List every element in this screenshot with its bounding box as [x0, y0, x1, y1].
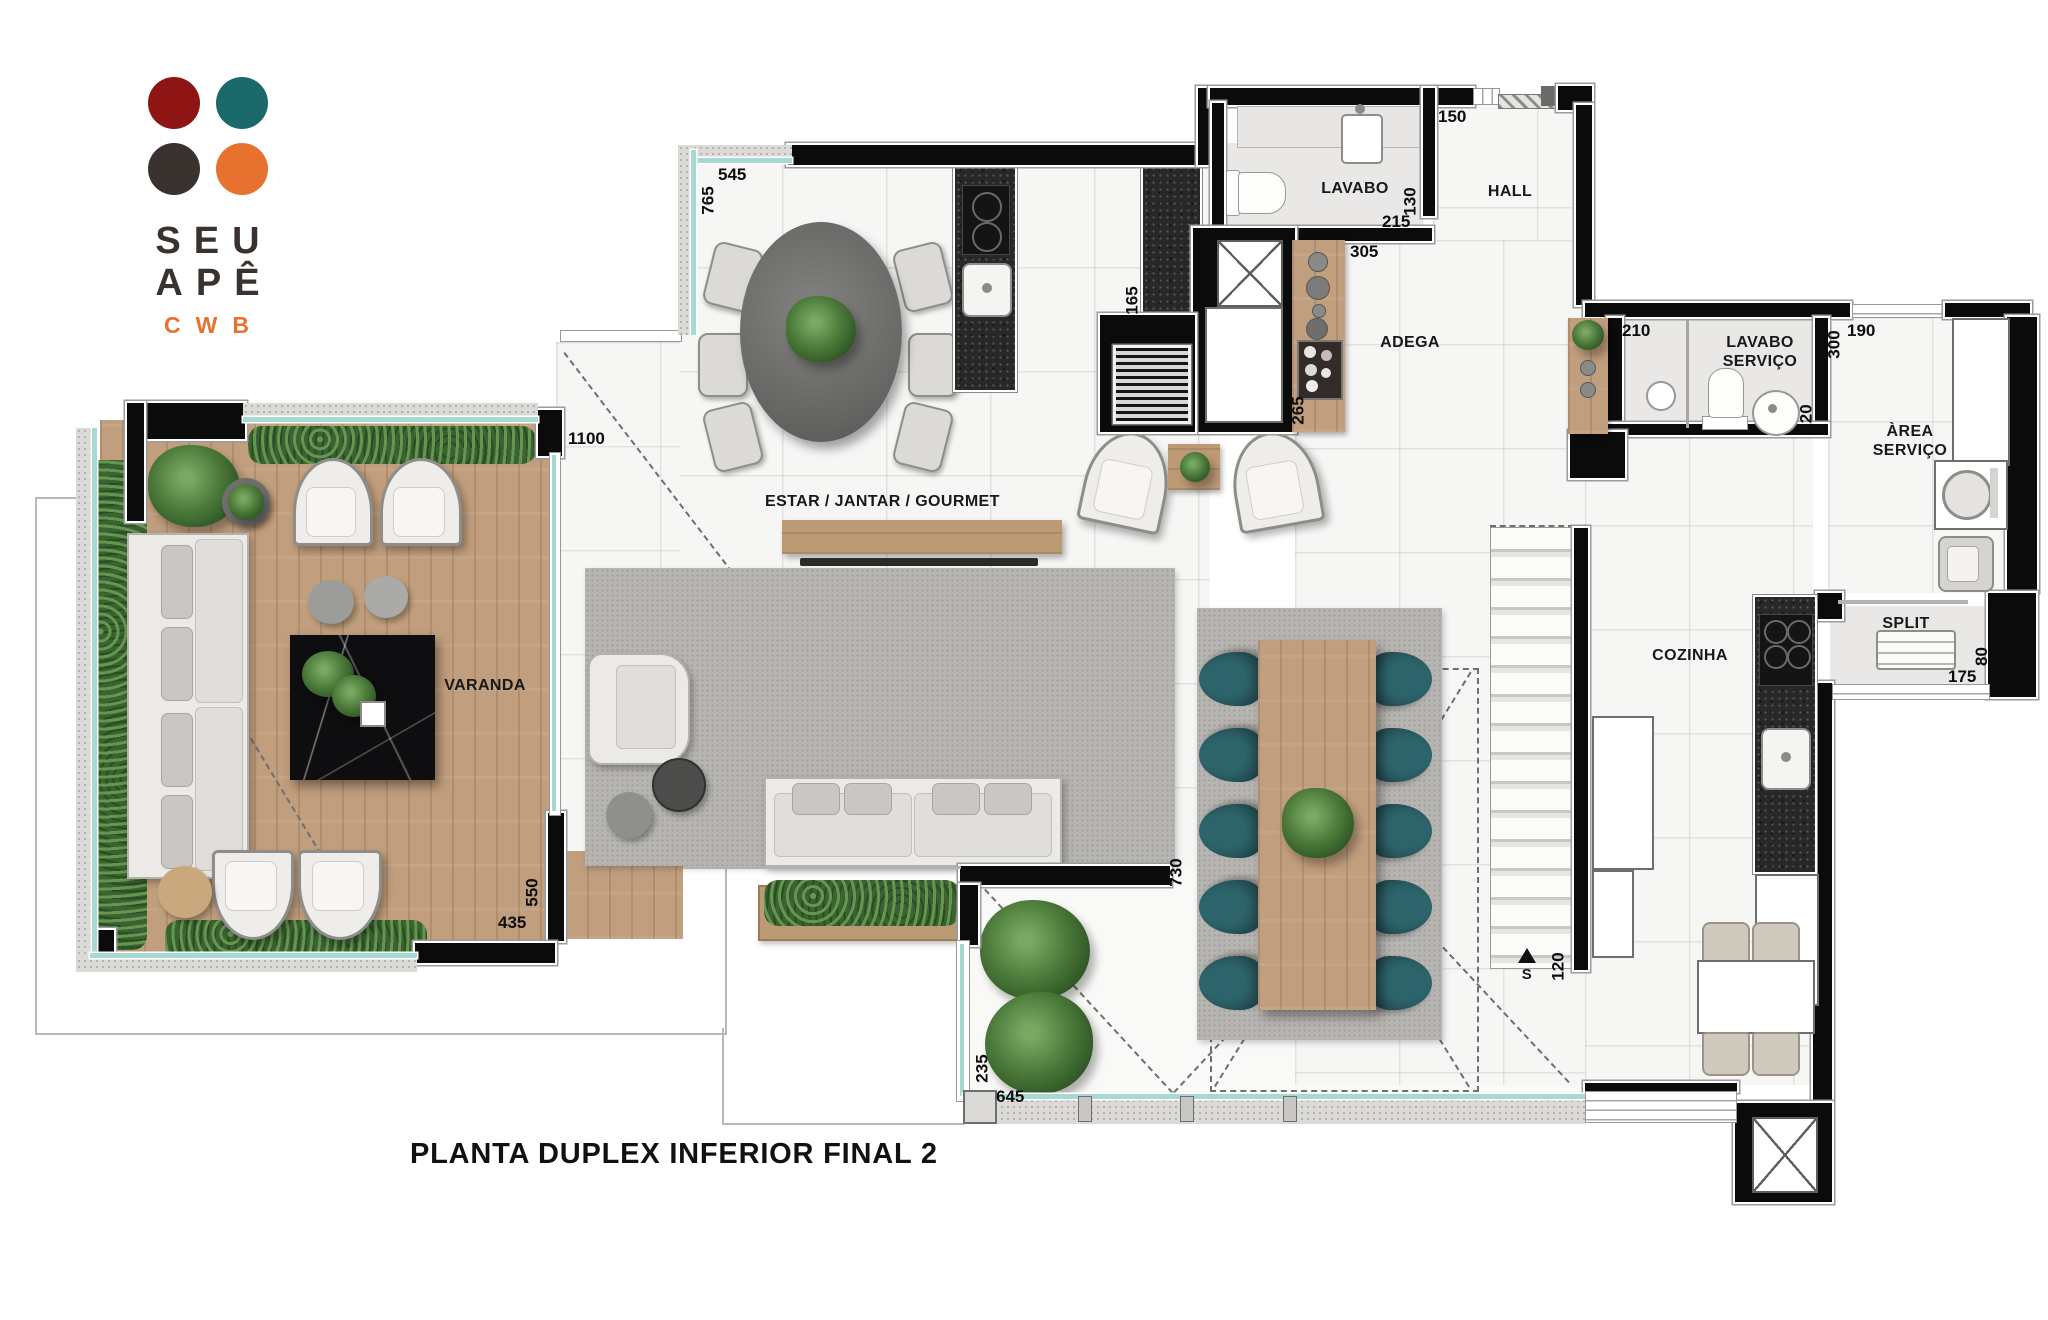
plan-title: PLANTA DUPLEX INFERIOR FINAL 2 — [410, 1138, 938, 1171]
fridge-cabinet — [1592, 716, 1654, 870]
facade-edge — [678, 145, 691, 335]
tall-cabinet — [1592, 870, 1634, 958]
window-glass — [90, 953, 417, 958]
dim-305: 305 — [1350, 243, 1378, 260]
sofa-pillow — [161, 713, 193, 787]
logo-circle-red — [148, 77, 200, 129]
dim-190: 190 — [1847, 322, 1875, 339]
logo-circle-orange — [216, 143, 268, 195]
dining-chair — [891, 400, 955, 474]
cabinet-knob — [1306, 276, 1330, 300]
burner — [1764, 645, 1788, 669]
dim-120-stair: 120 — [1550, 952, 1567, 980]
dim-550: 550 — [524, 878, 541, 906]
kitchen-cooktop — [1759, 614, 1813, 686]
facade-edge — [76, 958, 417, 972]
sofa-pillow — [792, 783, 840, 815]
island-cooktop — [962, 185, 1010, 255]
logo-circle-dark — [148, 143, 200, 195]
door-glass — [552, 455, 556, 811]
logo-circle-teal — [216, 77, 268, 129]
wall — [538, 410, 562, 456]
wine-bottle — [1306, 380, 1318, 392]
round-side-table — [652, 758, 706, 812]
burner — [1787, 645, 1811, 669]
wall — [1585, 1083, 1737, 1091]
dim-215: 215 — [1382, 213, 1410, 230]
island-sink — [962, 263, 1012, 317]
wall — [548, 813, 564, 941]
faucet — [1768, 404, 1777, 413]
terrace-chair-column-right — [1372, 640, 1428, 1010]
chair-cushion — [306, 487, 356, 537]
dim-300: 300 — [1826, 330, 1843, 358]
estar-armchair — [588, 653, 690, 765]
stair-marker: S — [1516, 966, 1538, 984]
duct-shaft — [1752, 1117, 1818, 1193]
low-wall — [560, 330, 682, 342]
hall-label: HALL — [1470, 182, 1550, 201]
stair-stringer-wall — [1574, 528, 1588, 970]
dim-730: 730 — [1168, 858, 1185, 886]
washer-panel — [1990, 468, 1998, 518]
dim-645: 645 — [996, 1088, 1024, 1105]
chair-cushion — [1244, 459, 1305, 521]
wine-rack — [1297, 340, 1343, 400]
burner — [1787, 620, 1811, 644]
floor-plan-page: SEU APÊ CWB — [0, 0, 2048, 1320]
vent-grille — [1113, 345, 1191, 424]
wall — [788, 145, 1210, 165]
round-wood-table — [158, 866, 212, 918]
sofa-pillow — [161, 627, 193, 701]
teal-chair — [1199, 728, 1265, 782]
dim-80: 80 — [1973, 647, 1990, 666]
tank-basin — [1947, 546, 1979, 582]
split-shelf-line — [1838, 600, 1968, 604]
shaft-void — [1205, 307, 1283, 423]
sofa-pillow — [161, 795, 193, 869]
cozinha-label: COZINHA — [1645, 646, 1735, 665]
elevator-shaft — [1217, 240, 1283, 307]
dim-235: 235 — [974, 1054, 991, 1082]
wine-bottle — [1321, 350, 1332, 361]
dim-1100: 1100 — [568, 430, 605, 447]
dim-765: 765 — [700, 186, 717, 214]
terrace-bush — [980, 900, 1090, 1000]
wall — [1608, 318, 1622, 432]
projection-line-v — [722, 1028, 724, 1125]
round-sink — [1752, 390, 1800, 436]
washer-door — [1942, 470, 1992, 520]
wall — [1576, 105, 1592, 305]
brand-line1: SEU — [144, 220, 284, 263]
window-glass — [680, 158, 792, 163]
wall — [127, 403, 144, 521]
wall — [960, 885, 978, 945]
cabinet-knob — [1312, 304, 1326, 318]
burner — [972, 192, 1002, 222]
cozinha-window — [1585, 1091, 1737, 1123]
dining-chair — [701, 400, 765, 474]
split-label: SPLIT — [1876, 614, 1936, 633]
breakfast-table — [1697, 960, 1815, 1034]
window-glass — [691, 150, 696, 335]
cabinet-knob — [1308, 252, 1328, 272]
sofa-pillow — [932, 783, 980, 815]
lavabo-sink — [1341, 114, 1383, 164]
side-table — [308, 580, 354, 624]
kitchen-sink — [1761, 728, 1811, 790]
window-glass — [92, 428, 97, 958]
split-ac-unit — [1876, 630, 1956, 670]
planter-hedge — [764, 880, 960, 926]
brand-line3: CWB — [144, 312, 284, 339]
staircase — [1490, 527, 1576, 969]
facade-edge — [243, 403, 538, 417]
varanda-label: VARANDA — [430, 676, 540, 695]
wine-bottle — [1304, 346, 1316, 358]
table-centerpiece-plant — [1282, 788, 1354, 858]
faucet — [1355, 104, 1365, 114]
split-louver — [1832, 684, 1990, 700]
dim-150: 150 — [1438, 108, 1466, 125]
dim-545: 545 — [718, 166, 746, 183]
varanda-sofa — [127, 533, 249, 879]
shower-drain — [1646, 381, 1676, 411]
dim-435: 435 — [498, 914, 526, 931]
sofa-seat — [195, 539, 243, 703]
breakfast-chair — [1702, 1032, 1750, 1076]
dim-120-lavserv: 120 — [1798, 404, 1815, 432]
lavabo-servico-label: LAVABO SERVIÇO — [1708, 333, 1812, 371]
laundry-tank — [1938, 536, 1994, 592]
dim-165: 165 — [1124, 286, 1141, 314]
planter-edge-line — [683, 866, 961, 869]
wine-bottle — [1305, 364, 1317, 376]
console-plant — [1572, 320, 1604, 350]
terrace-edge — [963, 1098, 1585, 1124]
wall — [127, 403, 245, 439]
sofa-pillow — [984, 783, 1032, 815]
breakfast-chair — [1752, 1032, 1800, 1076]
lavabo-counter — [1237, 106, 1420, 148]
hall-door-threshold — [1473, 88, 1500, 105]
window-glass — [963, 1094, 1585, 1099]
round-ottoman — [606, 792, 652, 838]
dim-265: 265 — [1290, 396, 1307, 424]
door-glass — [960, 944, 964, 1096]
chair-cushion — [225, 861, 277, 911]
dim-210: 210 — [1622, 322, 1650, 339]
table-centerpiece-plant — [786, 296, 856, 362]
wall — [2007, 317, 2037, 591]
dim-175: 175 — [1948, 668, 1976, 685]
burner — [972, 222, 1002, 252]
dining-chair — [891, 240, 955, 314]
stair-projection-dash — [1490, 525, 1574, 527]
wall — [1423, 88, 1435, 216]
shower-partition — [1686, 320, 1689, 428]
wall — [1585, 303, 1850, 317]
terrace-bush — [985, 992, 1093, 1094]
column-marker — [1180, 1096, 1194, 1122]
table-plant — [1180, 452, 1210, 482]
fire-pit — [360, 701, 386, 727]
gray-block — [1541, 86, 1559, 106]
console-knob — [1580, 382, 1596, 398]
projection-line-h — [722, 1123, 964, 1125]
potted-plant — [228, 484, 264, 520]
toilet-tank — [1702, 416, 1748, 430]
wall — [1988, 593, 2036, 697]
toilet-bowl — [1238, 172, 1286, 214]
teal-chair — [1199, 652, 1265, 706]
facade-edge — [76, 428, 92, 958]
wall — [415, 943, 555, 963]
teal-chair — [1199, 880, 1265, 934]
facade-edge — [680, 145, 792, 158]
chair-cushion — [1092, 458, 1154, 522]
teal-chair — [1199, 956, 1265, 1010]
washing-machine — [1934, 460, 2008, 530]
faucet — [982, 283, 992, 293]
wall — [1570, 432, 1625, 478]
chair-cushion — [312, 861, 364, 911]
dining-chair — [908, 333, 958, 397]
sofa-pillow — [844, 783, 892, 815]
wine-bottle — [1321, 368, 1331, 378]
planter-hedge — [248, 426, 536, 464]
wall — [1817, 593, 1842, 619]
tv-console — [782, 520, 1062, 554]
lavabo-label: LAVABO — [1310, 179, 1400, 198]
terrace-chair-column-left — [1205, 640, 1261, 1010]
stair-direction-arrow — [1518, 948, 1536, 963]
tv — [800, 558, 1038, 566]
sofa-seat — [195, 707, 243, 871]
area-servico-label: ÀREA SERVIÇO — [1850, 422, 1970, 460]
adega-label: ADEGA — [1370, 333, 1450, 352]
sofa-pillow — [161, 545, 193, 619]
varanda-fire-table — [290, 635, 435, 780]
chair-cushion — [616, 665, 676, 749]
chair-cushion — [393, 487, 445, 537]
column-marker — [1078, 1096, 1092, 1122]
wall — [960, 866, 1170, 885]
estar-sofa — [764, 777, 1062, 867]
estar-label: ESTAR / JANTAR / GOURMET — [765, 492, 995, 511]
teal-chair — [1199, 804, 1265, 858]
faucet — [1781, 752, 1791, 762]
window-glass — [243, 417, 538, 422]
side-table — [364, 576, 408, 618]
wall — [1212, 103, 1224, 240]
console-knob — [1580, 360, 1596, 376]
column-marker — [963, 1090, 997, 1124]
service-door-threshold — [1852, 304, 1946, 318]
kitchen-top-counter — [1143, 165, 1200, 315]
toilet-bowl — [1708, 368, 1744, 418]
brand-line2: APÊ — [144, 262, 284, 305]
column-marker — [1283, 1096, 1297, 1122]
cabinet-knob — [1306, 318, 1328, 340]
wall — [1945, 303, 2030, 317]
burner — [1764, 620, 1788, 644]
brand-logo: SEU APÊ CWB — [140, 70, 280, 330]
